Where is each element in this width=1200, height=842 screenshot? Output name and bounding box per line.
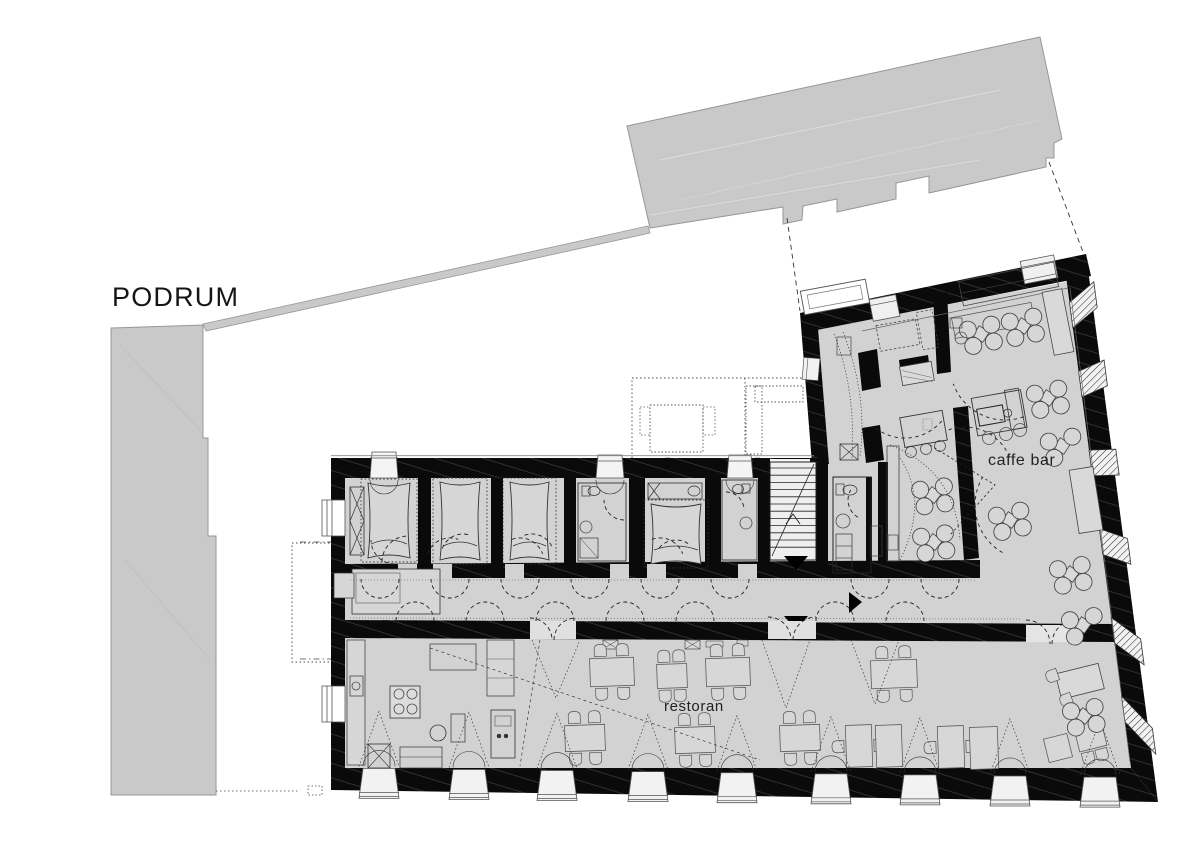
svg-text:restoran: restoran: [664, 698, 724, 715]
svg-text:PODRUM: PODRUM: [112, 282, 239, 312]
svg-text:caffe bar: caffe bar: [988, 452, 1055, 469]
